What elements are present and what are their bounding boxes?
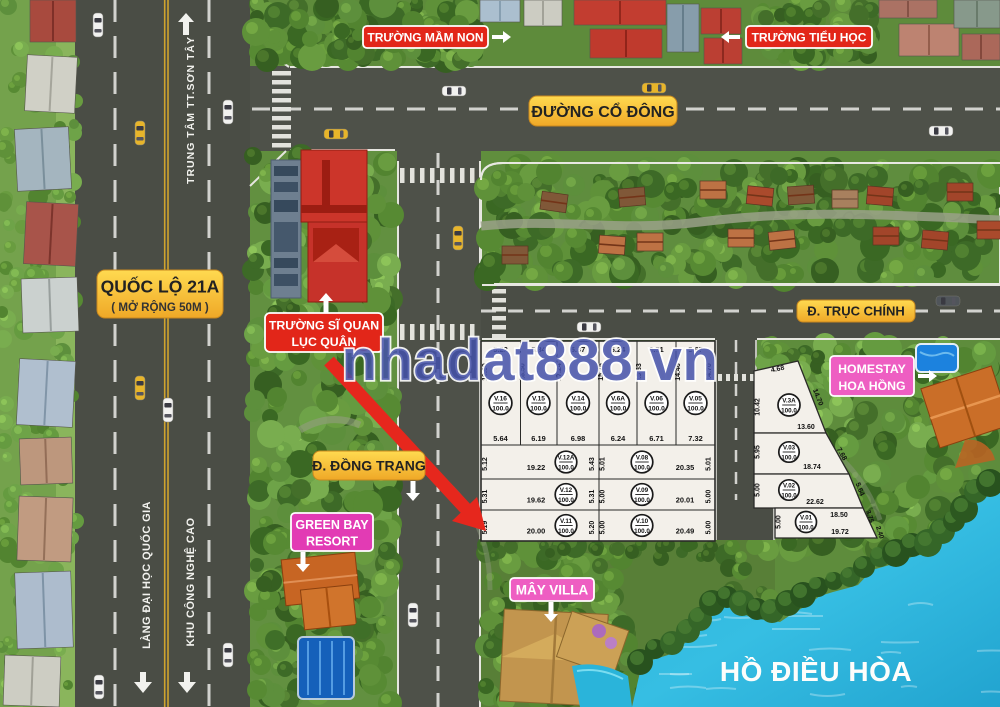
svg-text:19.22: 19.22: [527, 463, 546, 472]
svg-text:13.60: 13.60: [797, 424, 815, 431]
svg-text:5.00: 5.00: [706, 490, 713, 504]
svg-text:18.74: 18.74: [803, 464, 821, 471]
svg-text:GREEN BAY: GREEN BAY: [295, 518, 369, 532]
svg-text:V.08: V.08: [636, 455, 649, 462]
svg-text:100.0: 100.0: [634, 497, 650, 504]
svg-text:6.71: 6.71: [649, 434, 663, 443]
svg-text:TRƯỜNG TIỂU HỌC: TRƯỜNG TIỂU HỌC: [752, 29, 867, 44]
svg-text:100.0: 100.0: [530, 405, 547, 412]
svg-text:100.0: 100.0: [687, 405, 704, 412]
svg-text:QUỐC LỘ 21A: QUỐC LỘ 21A: [101, 276, 220, 297]
svg-text:RESORT: RESORT: [306, 534, 358, 548]
svg-text:( MỞ RỘNG 50M ): ( MỞ RỘNG 50M ): [111, 301, 209, 314]
svg-text:V.3A: V.3A: [782, 398, 796, 405]
svg-text:V.12A: V.12A: [558, 455, 575, 462]
svg-text:10.42: 10.42: [755, 398, 762, 416]
svg-text:6.19: 6.19: [531, 434, 545, 443]
svg-text:100.0: 100.0: [558, 497, 574, 504]
svg-text:V.15: V.15: [532, 396, 545, 403]
svg-text:MÂY VILLA: MÂY VILLA: [516, 582, 589, 597]
svg-text:Đ. ĐỒNG TRẠNG: Đ. ĐỒNG TRẠNG: [312, 457, 426, 474]
svg-text:100.0: 100.0: [798, 524, 814, 531]
svg-text:5.00: 5.00: [706, 521, 713, 535]
svg-text:nhadat888.vn: nhadat888.vn: [342, 328, 719, 393]
svg-text:V.10: V.10: [636, 518, 649, 525]
svg-text:20.00: 20.00: [527, 527, 546, 536]
svg-text:19.62: 19.62: [527, 496, 546, 505]
svg-text:7.32: 7.32: [688, 434, 702, 443]
svg-text:5.43: 5.43: [589, 457, 596, 471]
svg-text:5.20: 5.20: [589, 521, 596, 535]
svg-text:5.64: 5.64: [493, 434, 508, 443]
svg-text:V.12: V.12: [560, 487, 573, 494]
svg-text:5.00: 5.00: [600, 490, 607, 504]
svg-text:100.0: 100.0: [558, 464, 574, 471]
svg-text:6.98: 6.98: [571, 434, 585, 443]
svg-text:V.01: V.01: [800, 515, 813, 522]
svg-text:19.72: 19.72: [831, 529, 849, 536]
svg-text:100.0: 100.0: [492, 405, 509, 412]
svg-text:V.03: V.03: [783, 445, 796, 452]
svg-text:100.0: 100.0: [558, 528, 574, 535]
svg-text:HỒ ĐIỀU HÒA: HỒ ĐIỀU HÒA: [720, 656, 912, 687]
svg-text:HOA HỒNG: HOA HỒNG: [838, 378, 905, 393]
svg-text:LÀNG ĐẠI HỌC QUỐC GIA: LÀNG ĐẠI HỌC QUỐC GIA: [139, 501, 153, 649]
svg-text:100.0: 100.0: [570, 405, 587, 412]
svg-text:TRƯỜNG MẦM NON: TRƯỜNG MẦM NON: [367, 29, 483, 44]
svg-text:5.95: 5.95: [755, 445, 762, 459]
svg-text:5.12: 5.12: [482, 457, 489, 471]
svg-text:V.11: V.11: [560, 518, 573, 525]
svg-text:V.6A: V.6A: [611, 396, 625, 403]
svg-text:TRUNG TÂM TT.SƠN TÂY: TRUNG TÂM TT.SƠN TÂY: [184, 36, 197, 184]
svg-text:V.09: V.09: [636, 487, 649, 494]
svg-text:20.01: 20.01: [676, 496, 695, 505]
svg-text:6.24: 6.24: [611, 434, 626, 443]
svg-text:5.00: 5.00: [776, 515, 783, 529]
svg-text:100.0: 100.0: [781, 492, 797, 499]
svg-text:KHU CÔNG NGHỆ CAO: KHU CÔNG NGHỆ CAO: [184, 517, 197, 646]
svg-text:100.0: 100.0: [781, 407, 797, 414]
svg-text:5.00: 5.00: [755, 483, 762, 497]
svg-text:100.0: 100.0: [781, 454, 797, 461]
svg-text:Đ. TRỤC CHÍNH: Đ. TRỤC CHÍNH: [807, 304, 905, 319]
svg-text:V.06: V.06: [650, 396, 663, 403]
svg-text:ĐƯỜNG CỔ ĐÔNG: ĐƯỜNG CỔ ĐÔNG: [531, 102, 674, 121]
svg-text:100.0: 100.0: [634, 464, 650, 471]
svg-text:20.49: 20.49: [676, 527, 695, 536]
svg-text:V.02: V.02: [783, 483, 796, 490]
svg-text:5.31: 5.31: [589, 490, 596, 504]
svg-text:22.62: 22.62: [806, 499, 824, 506]
svg-text:5.01: 5.01: [600, 457, 607, 471]
svg-text:20.35: 20.35: [676, 463, 695, 472]
svg-text:5.00: 5.00: [600, 521, 607, 535]
svg-text:V.05: V.05: [689, 396, 702, 403]
svg-text:V.16: V.16: [494, 396, 507, 403]
svg-text:100.0: 100.0: [610, 405, 627, 412]
svg-text:100.0: 100.0: [634, 528, 650, 535]
svg-text:HOMESTAY: HOMESTAY: [838, 362, 906, 376]
svg-text:18.50: 18.50: [830, 512, 848, 519]
svg-text:100.0: 100.0: [648, 405, 665, 412]
svg-text:5.31: 5.31: [482, 490, 489, 504]
svg-text:5.01: 5.01: [706, 457, 713, 471]
svg-text:V.14: V.14: [572, 396, 585, 403]
